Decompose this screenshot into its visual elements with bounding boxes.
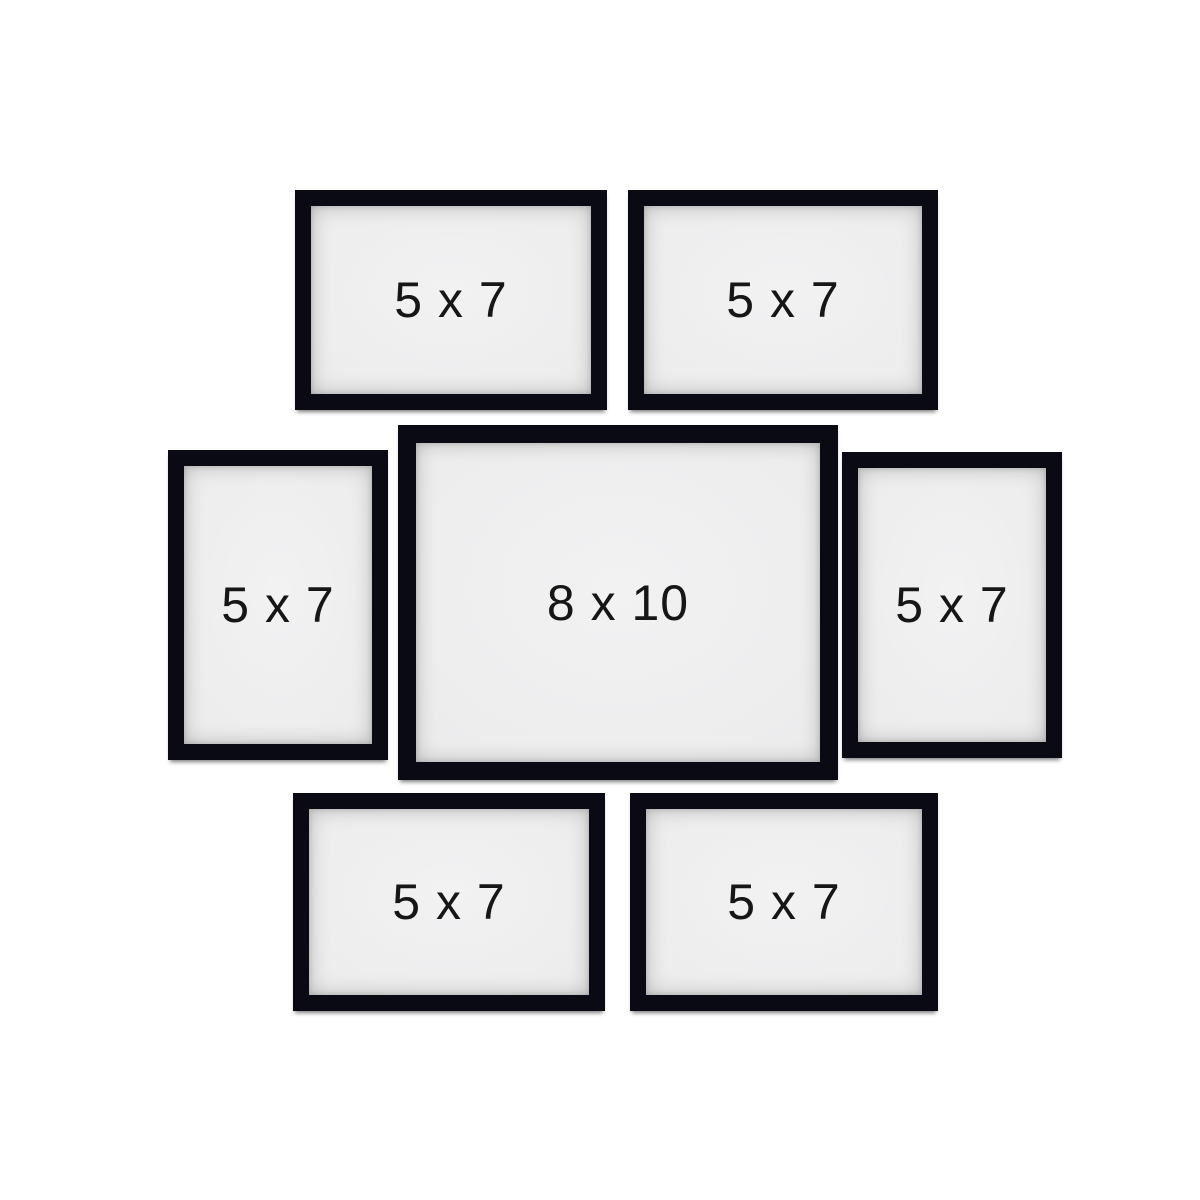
frame-mat: 5 x 7: [309, 809, 589, 995]
frame-mat: 8 x 10: [416, 443, 820, 762]
frame-mat: 5 x 7: [311, 206, 591, 394]
photo-frame-top-left: 5 x 7: [295, 190, 607, 410]
frame-size-label: 5 x 7: [394, 271, 507, 329]
photo-frame-top-right: 5 x 7: [628, 190, 938, 410]
frame-size-label: 5 x 7: [895, 576, 1008, 634]
frame-set-collage: 5 x 7 5 x 7 5 x 7 8 x 10 5 x 7 5 x 7 5 x…: [0, 0, 1200, 1200]
frame-mat: 5 x 7: [644, 206, 922, 394]
frame-size-label: 5 x 7: [727, 873, 840, 931]
photo-frame-center: 8 x 10: [398, 425, 838, 780]
frame-mat: 5 x 7: [646, 809, 922, 995]
photo-frame-bottom-left: 5 x 7: [293, 793, 605, 1011]
frame-size-label: 5 x 7: [221, 576, 334, 634]
frame-size-label: 8 x 10: [547, 574, 689, 632]
photo-frame-bottom-right: 5 x 7: [630, 793, 938, 1011]
frame-size-label: 5 x 7: [726, 271, 839, 329]
photo-frame-middle-left: 5 x 7: [168, 450, 388, 760]
frame-size-label: 5 x 7: [392, 873, 505, 931]
photo-frame-middle-right: 5 x 7: [842, 452, 1062, 758]
frame-mat: 5 x 7: [858, 468, 1046, 742]
frame-mat: 5 x 7: [184, 466, 372, 744]
